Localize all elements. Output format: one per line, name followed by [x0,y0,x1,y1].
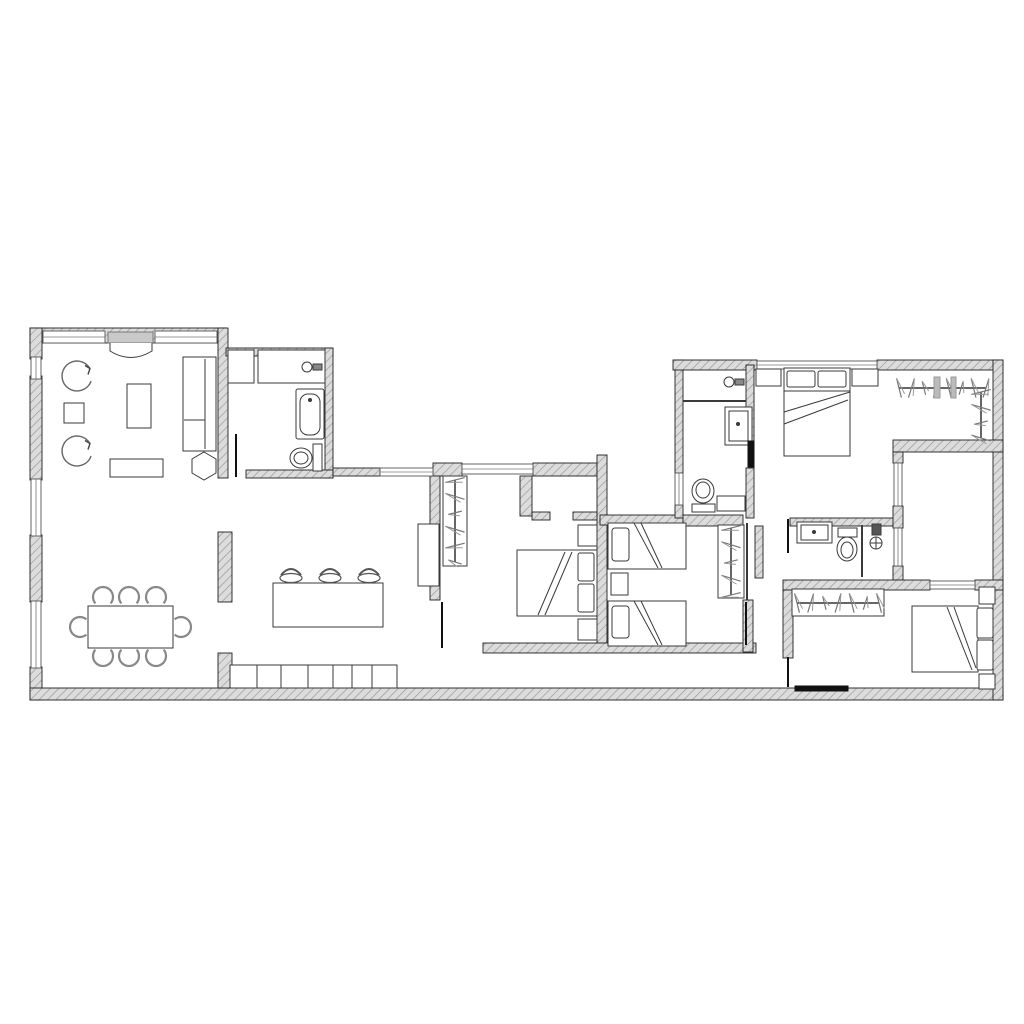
closet-bottom-wall [893,440,1003,452]
left-window-2 [31,479,41,536]
bedroomA-nightstand-bottom [578,619,597,640]
top-right-pier-right [877,360,1003,370]
bath3-left-wall [755,526,763,578]
bath2-faucet [724,377,744,387]
court-pier-2 [893,506,903,528]
bedroom4-bed [912,606,993,672]
kitchen-stub-wall-1 [218,532,232,602]
twin-nightstand [611,573,628,595]
bottom-wall [30,688,1003,700]
coffee-table [127,384,151,428]
dining-chair-7 [70,617,86,637]
bedroomA-bed [517,550,597,616]
toilet-2 [692,479,715,512]
left-wall-pier-2 [30,376,42,480]
court-pier-1 [893,452,903,463]
floor-plan-page [0,0,1024,1024]
twin-bed-1 [608,523,686,569]
master-nightstand-left [756,369,781,386]
hall-top-wall-a [683,515,743,526]
dining-chair-1 [93,587,113,603]
fridge [418,524,439,586]
wardrobe-twinroom [718,525,744,601]
left-window-1 [31,357,41,379]
bath2-nook-window [675,473,683,505]
bath1-right-wall [325,348,333,478]
bath1-vanity-small [228,350,254,383]
bedroom4-window [930,581,975,589]
twinroom-right-wall-low [743,600,753,652]
dining-chair-5 [119,650,139,666]
hex-side-table [192,452,216,480]
court-pier-3 [893,566,903,580]
rightblock-left-wall-up [675,360,683,473]
dining-chair-2 [119,587,139,603]
side-table-square [64,403,84,423]
bar-stool-2 [319,569,341,583]
bar-stool-3 [358,569,380,583]
bedroomA-top-pier-right [533,463,597,476]
dining-chair-6 [146,650,166,666]
shower-unit-2 [725,407,752,445]
wardrobe-bedroomA [443,476,467,568]
sofa [183,357,216,451]
bath2-right-wall-low [746,468,754,518]
threshold-bar [795,686,848,691]
dining-chair-3 [146,587,166,603]
dining-chair-8 [175,617,191,637]
dining-chair-4 [93,650,113,666]
floor-plan-svg [0,0,1024,1024]
bedroomA-alcove-wall-a [532,512,550,520]
closet-garment-2 [951,377,956,398]
bathtub [296,389,324,439]
dining-table [88,606,173,648]
swivel-armchair-2 [62,436,91,466]
closet-garment-1 [934,377,940,398]
master-nightstand-right [852,369,878,386]
sink-3 [797,522,832,543]
bath2-door-leaf-black [748,441,754,467]
wardrobe-bedroom4 [792,589,885,616]
left-wall-pier-3 [30,535,42,602]
left-wall-pier-1 [30,328,42,359]
bedroomA-nightstand-top [578,525,597,546]
toilet-3 [837,528,857,561]
party-wall [597,455,607,650]
bar-stool-1 [280,569,302,583]
closet-rail-top [897,377,993,398]
bedroomA-alcove-wall-b [573,512,597,520]
rightblock-left-wall-low [675,505,683,518]
court-window-2 [894,528,902,566]
toilet-1 [290,444,322,471]
bedroomA-top-pier-left [433,463,462,476]
fireplace-niche [108,332,153,358]
bath2-cabinet [717,496,745,511]
left-window-3 [31,601,41,668]
kitchen-counter [230,665,397,688]
right-outer-wall [993,360,1003,700]
corridor-top-wall [333,468,380,476]
living-window-1 [43,331,105,343]
bench [110,459,163,477]
bedroomA-window [462,464,533,474]
court-window-1 [894,463,902,506]
twin-bed-2 [608,601,686,646]
bedroom4-nightstand-top [979,587,995,604]
top-right-pier-left [673,360,757,370]
kitchen-island [273,583,383,627]
corridor-glazing [380,468,433,476]
bedroomA-alcove-wall-vert [520,476,532,516]
living-window-2 [155,331,217,343]
shower-head-3 [870,524,882,549]
closet-rail-right [970,390,991,445]
swivel-armchair-1 [62,361,91,391]
master-bed [784,368,850,456]
bedroom4-nightstand-bottom [979,674,995,689]
